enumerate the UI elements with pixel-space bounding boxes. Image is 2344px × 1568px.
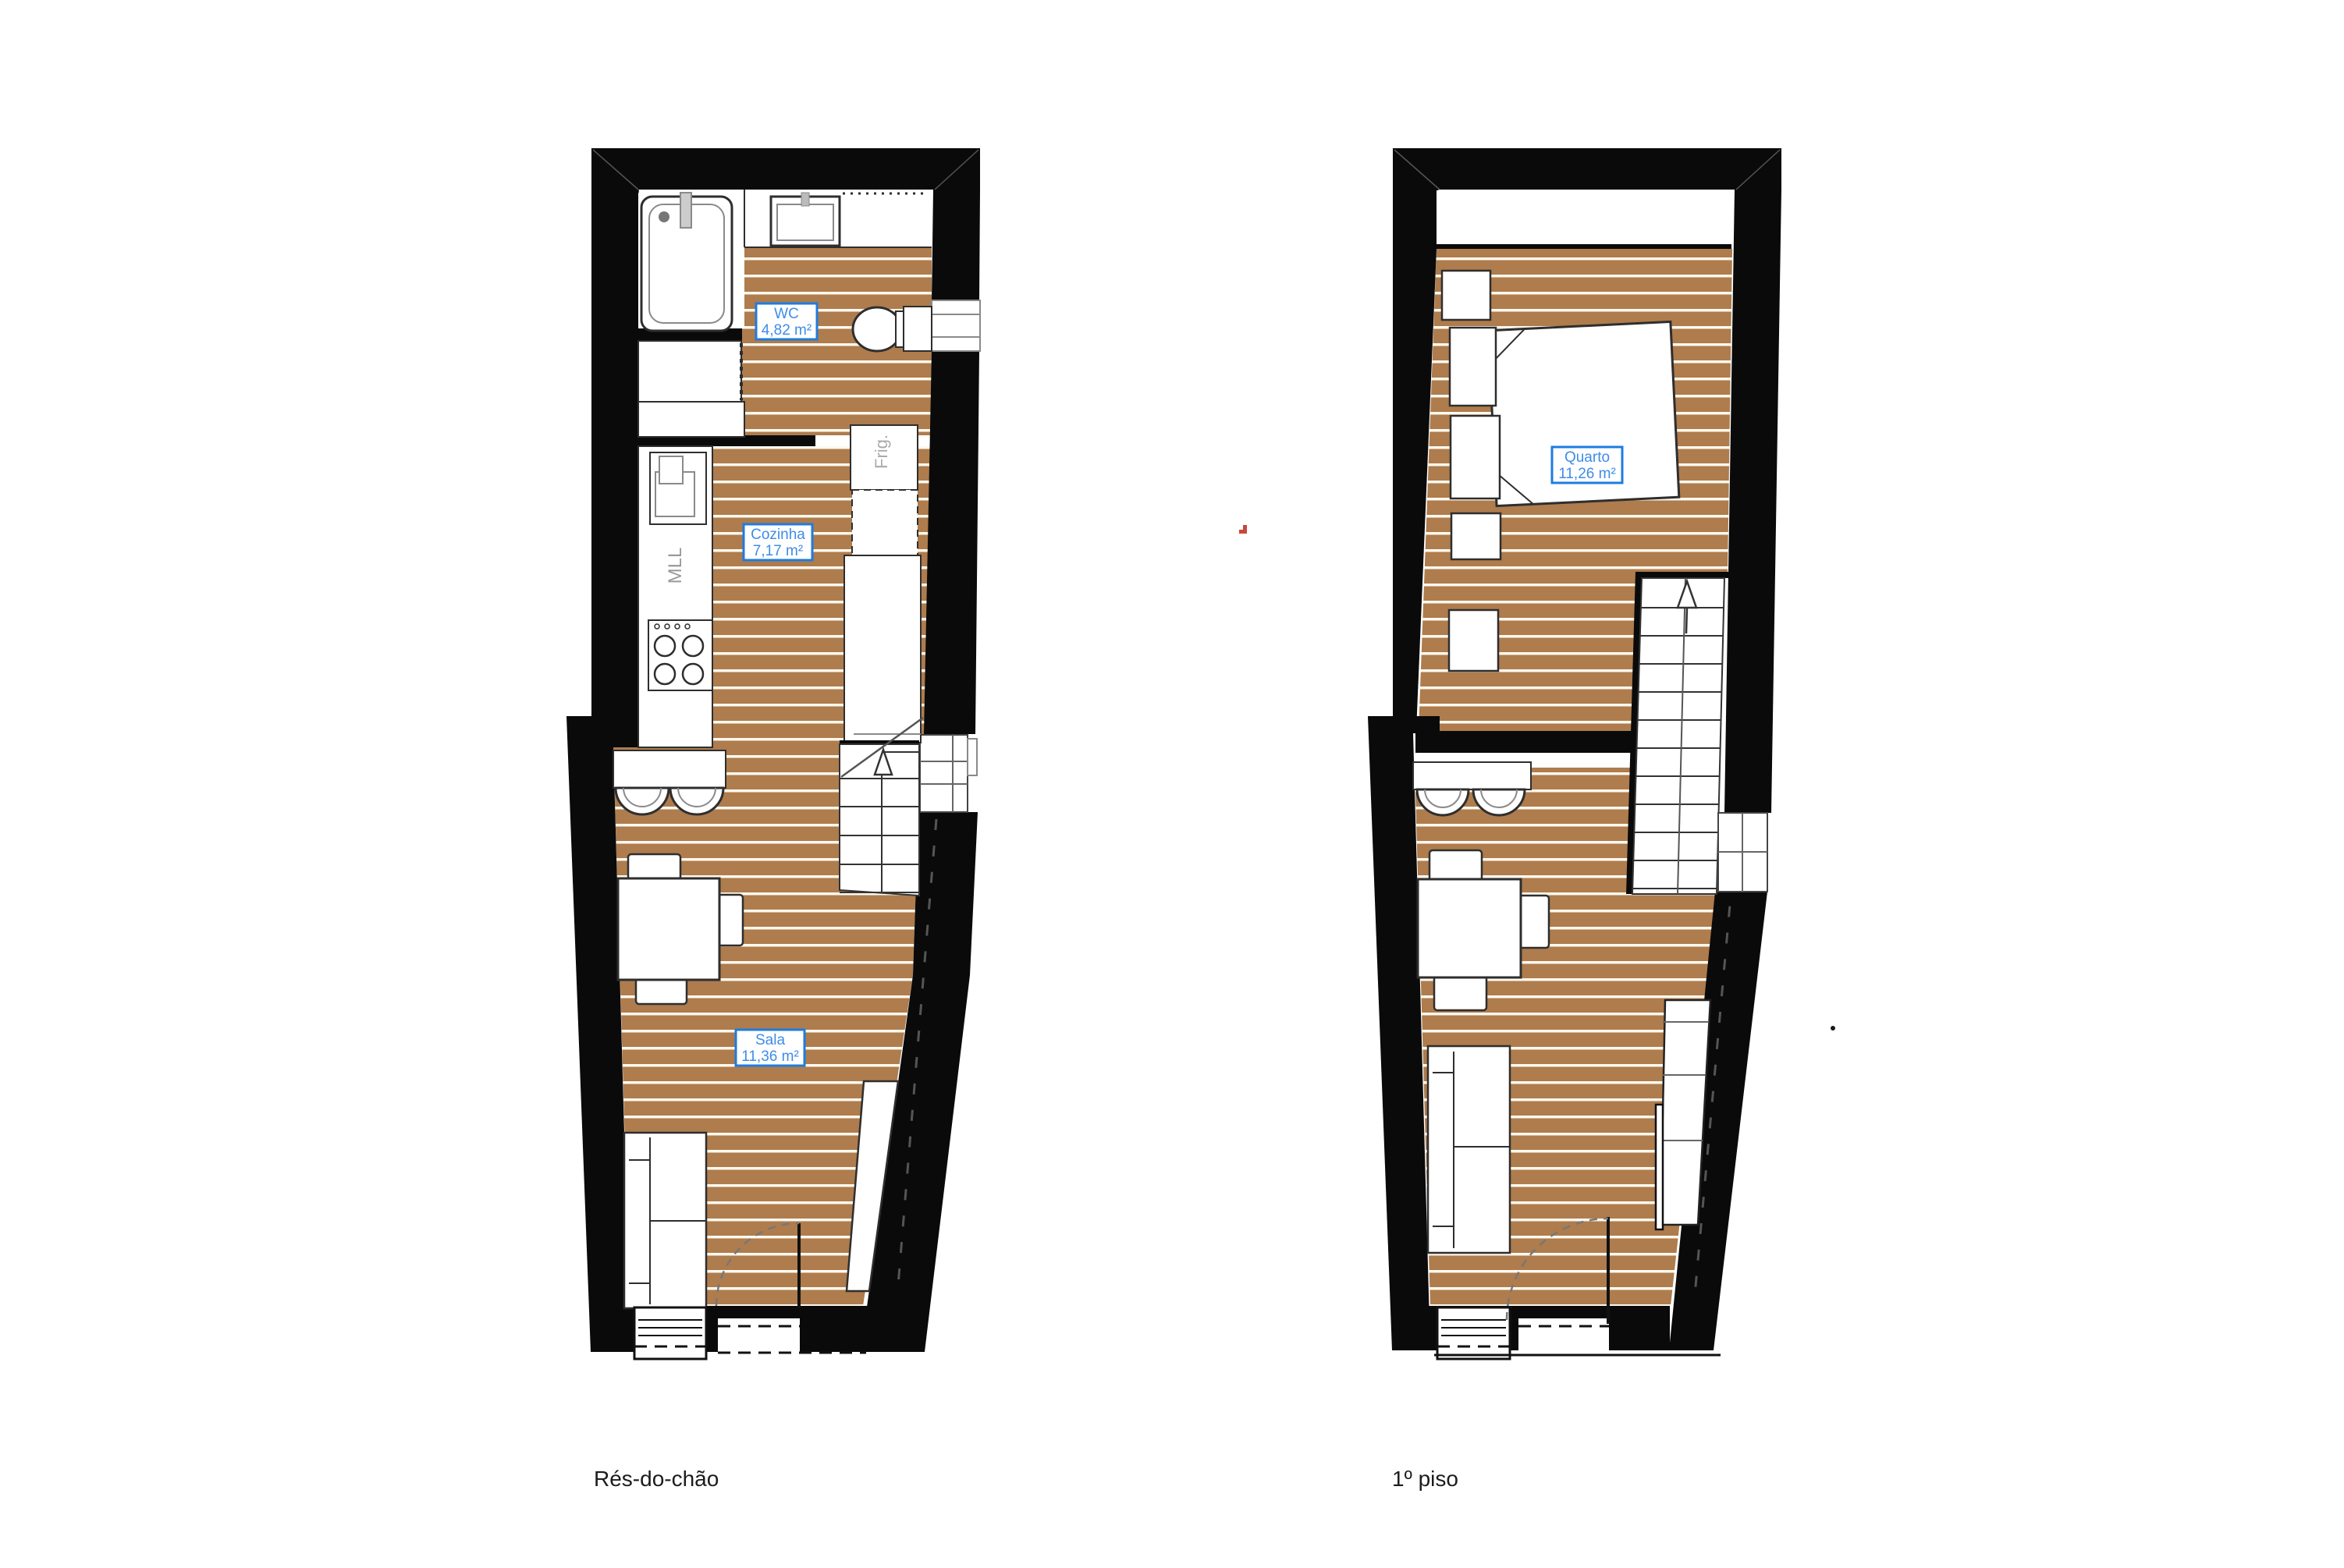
svg-text:Rés-do-chão: Rés-do-chão xyxy=(594,1467,719,1491)
svg-text:7,17 m²: 7,17 m² xyxy=(753,543,803,559)
svg-text:11,26 m²: 11,26 m² xyxy=(1558,466,1616,482)
svg-text:Quarto: Quarto xyxy=(1564,449,1610,466)
svg-text:11,36 m²: 11,36 m² xyxy=(741,1048,799,1065)
svg-text:1º piso: 1º piso xyxy=(1392,1467,1458,1491)
svg-text:MLL: MLL xyxy=(665,548,686,584)
svg-text:4,82 m²: 4,82 m² xyxy=(762,322,812,339)
svg-text:WC: WC xyxy=(774,306,799,322)
svg-text:Cozinha: Cozinha xyxy=(751,527,805,543)
svg-text:Frig.: Frig. xyxy=(872,435,891,469)
svg-text:Sala: Sala xyxy=(755,1032,785,1048)
